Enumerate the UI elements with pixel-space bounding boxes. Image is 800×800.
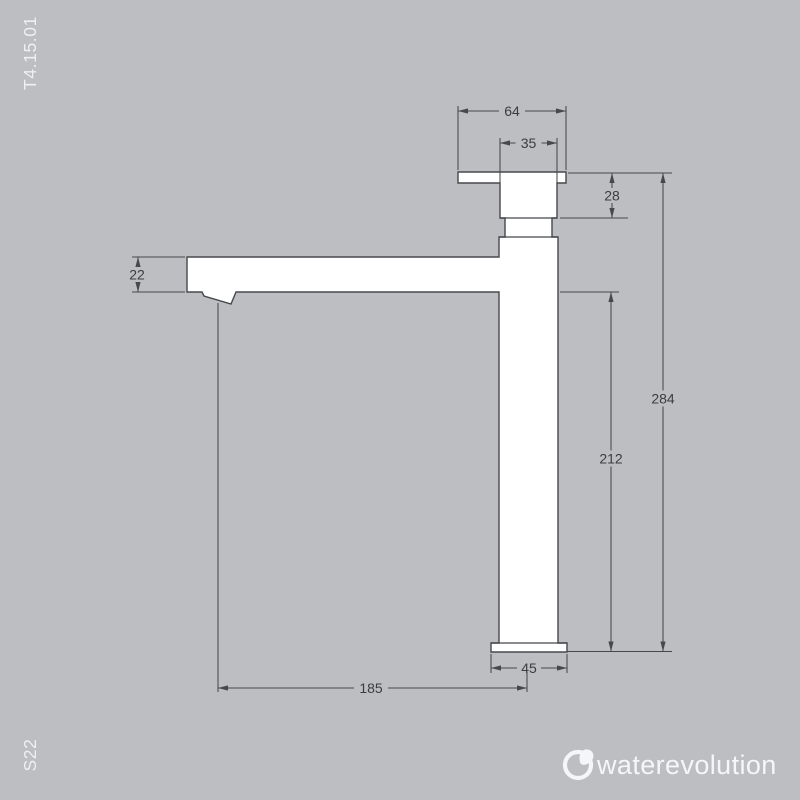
dimension-handle-plate-width: 64 xyxy=(458,103,566,170)
dimension-total-height: 284 xyxy=(647,173,679,652)
faucet-dimension-drawing: 64 35 28 22 28 xyxy=(0,0,800,800)
faucet-outline xyxy=(187,172,567,652)
dimension-value: 64 xyxy=(504,103,520,119)
product-code-label: T4.15.01 xyxy=(20,16,40,90)
dimension-value: 45 xyxy=(521,660,537,676)
dimension-height-below-spout: 212 xyxy=(560,292,627,652)
dimension-value: 28 xyxy=(604,188,620,204)
dimension-value: 185 xyxy=(359,680,383,696)
brand-logo: waterevolution xyxy=(565,749,777,780)
brand-logo-text: waterevolution xyxy=(596,750,777,780)
dimension-value: 35 xyxy=(521,135,537,151)
dimension-value: 284 xyxy=(651,391,675,407)
drawing-sheet: 64 35 28 22 28 xyxy=(0,0,800,800)
dimension-spout-height: 22 xyxy=(126,257,185,292)
dimension-spout-reach: 185 xyxy=(218,303,527,696)
dimension-base-width: 45 xyxy=(491,654,567,676)
drop-in-circle-icon xyxy=(565,749,593,778)
dimension-value: 22 xyxy=(129,267,145,283)
dimension-handle-height: 28 xyxy=(560,173,672,218)
dimension-value: 212 xyxy=(599,451,623,467)
series-code-label: S22 xyxy=(20,739,40,772)
